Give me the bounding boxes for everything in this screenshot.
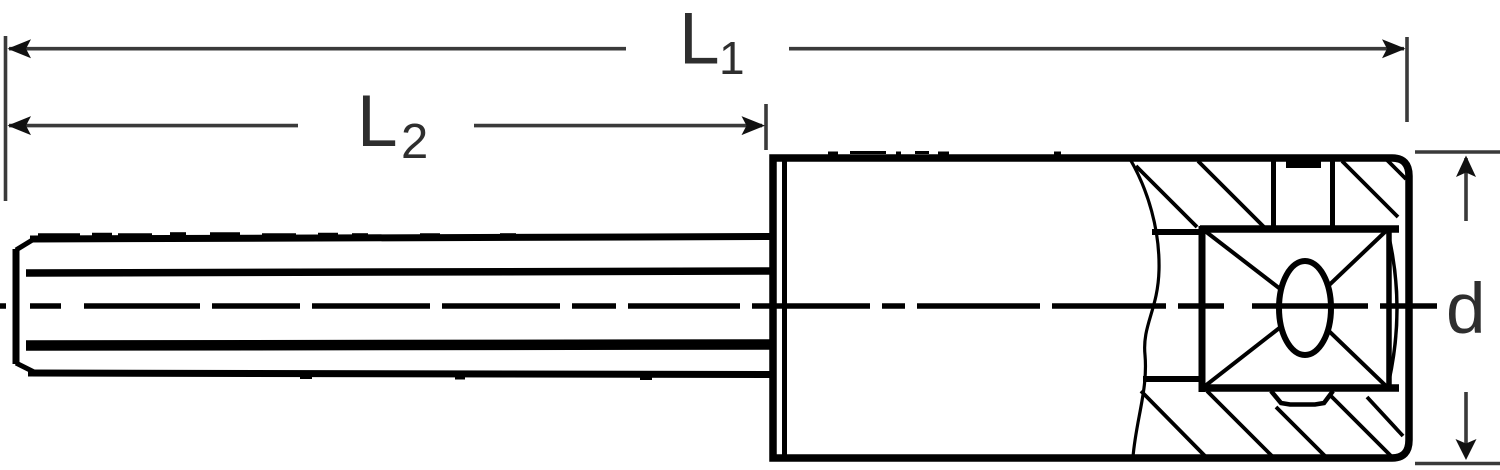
svg-text:2: 2 <box>401 115 428 169</box>
svg-text:L: L <box>357 81 398 162</box>
svg-text:L: L <box>679 0 720 80</box>
svg-text:1: 1 <box>719 32 745 84</box>
svg-text:d: d <box>1446 270 1486 349</box>
